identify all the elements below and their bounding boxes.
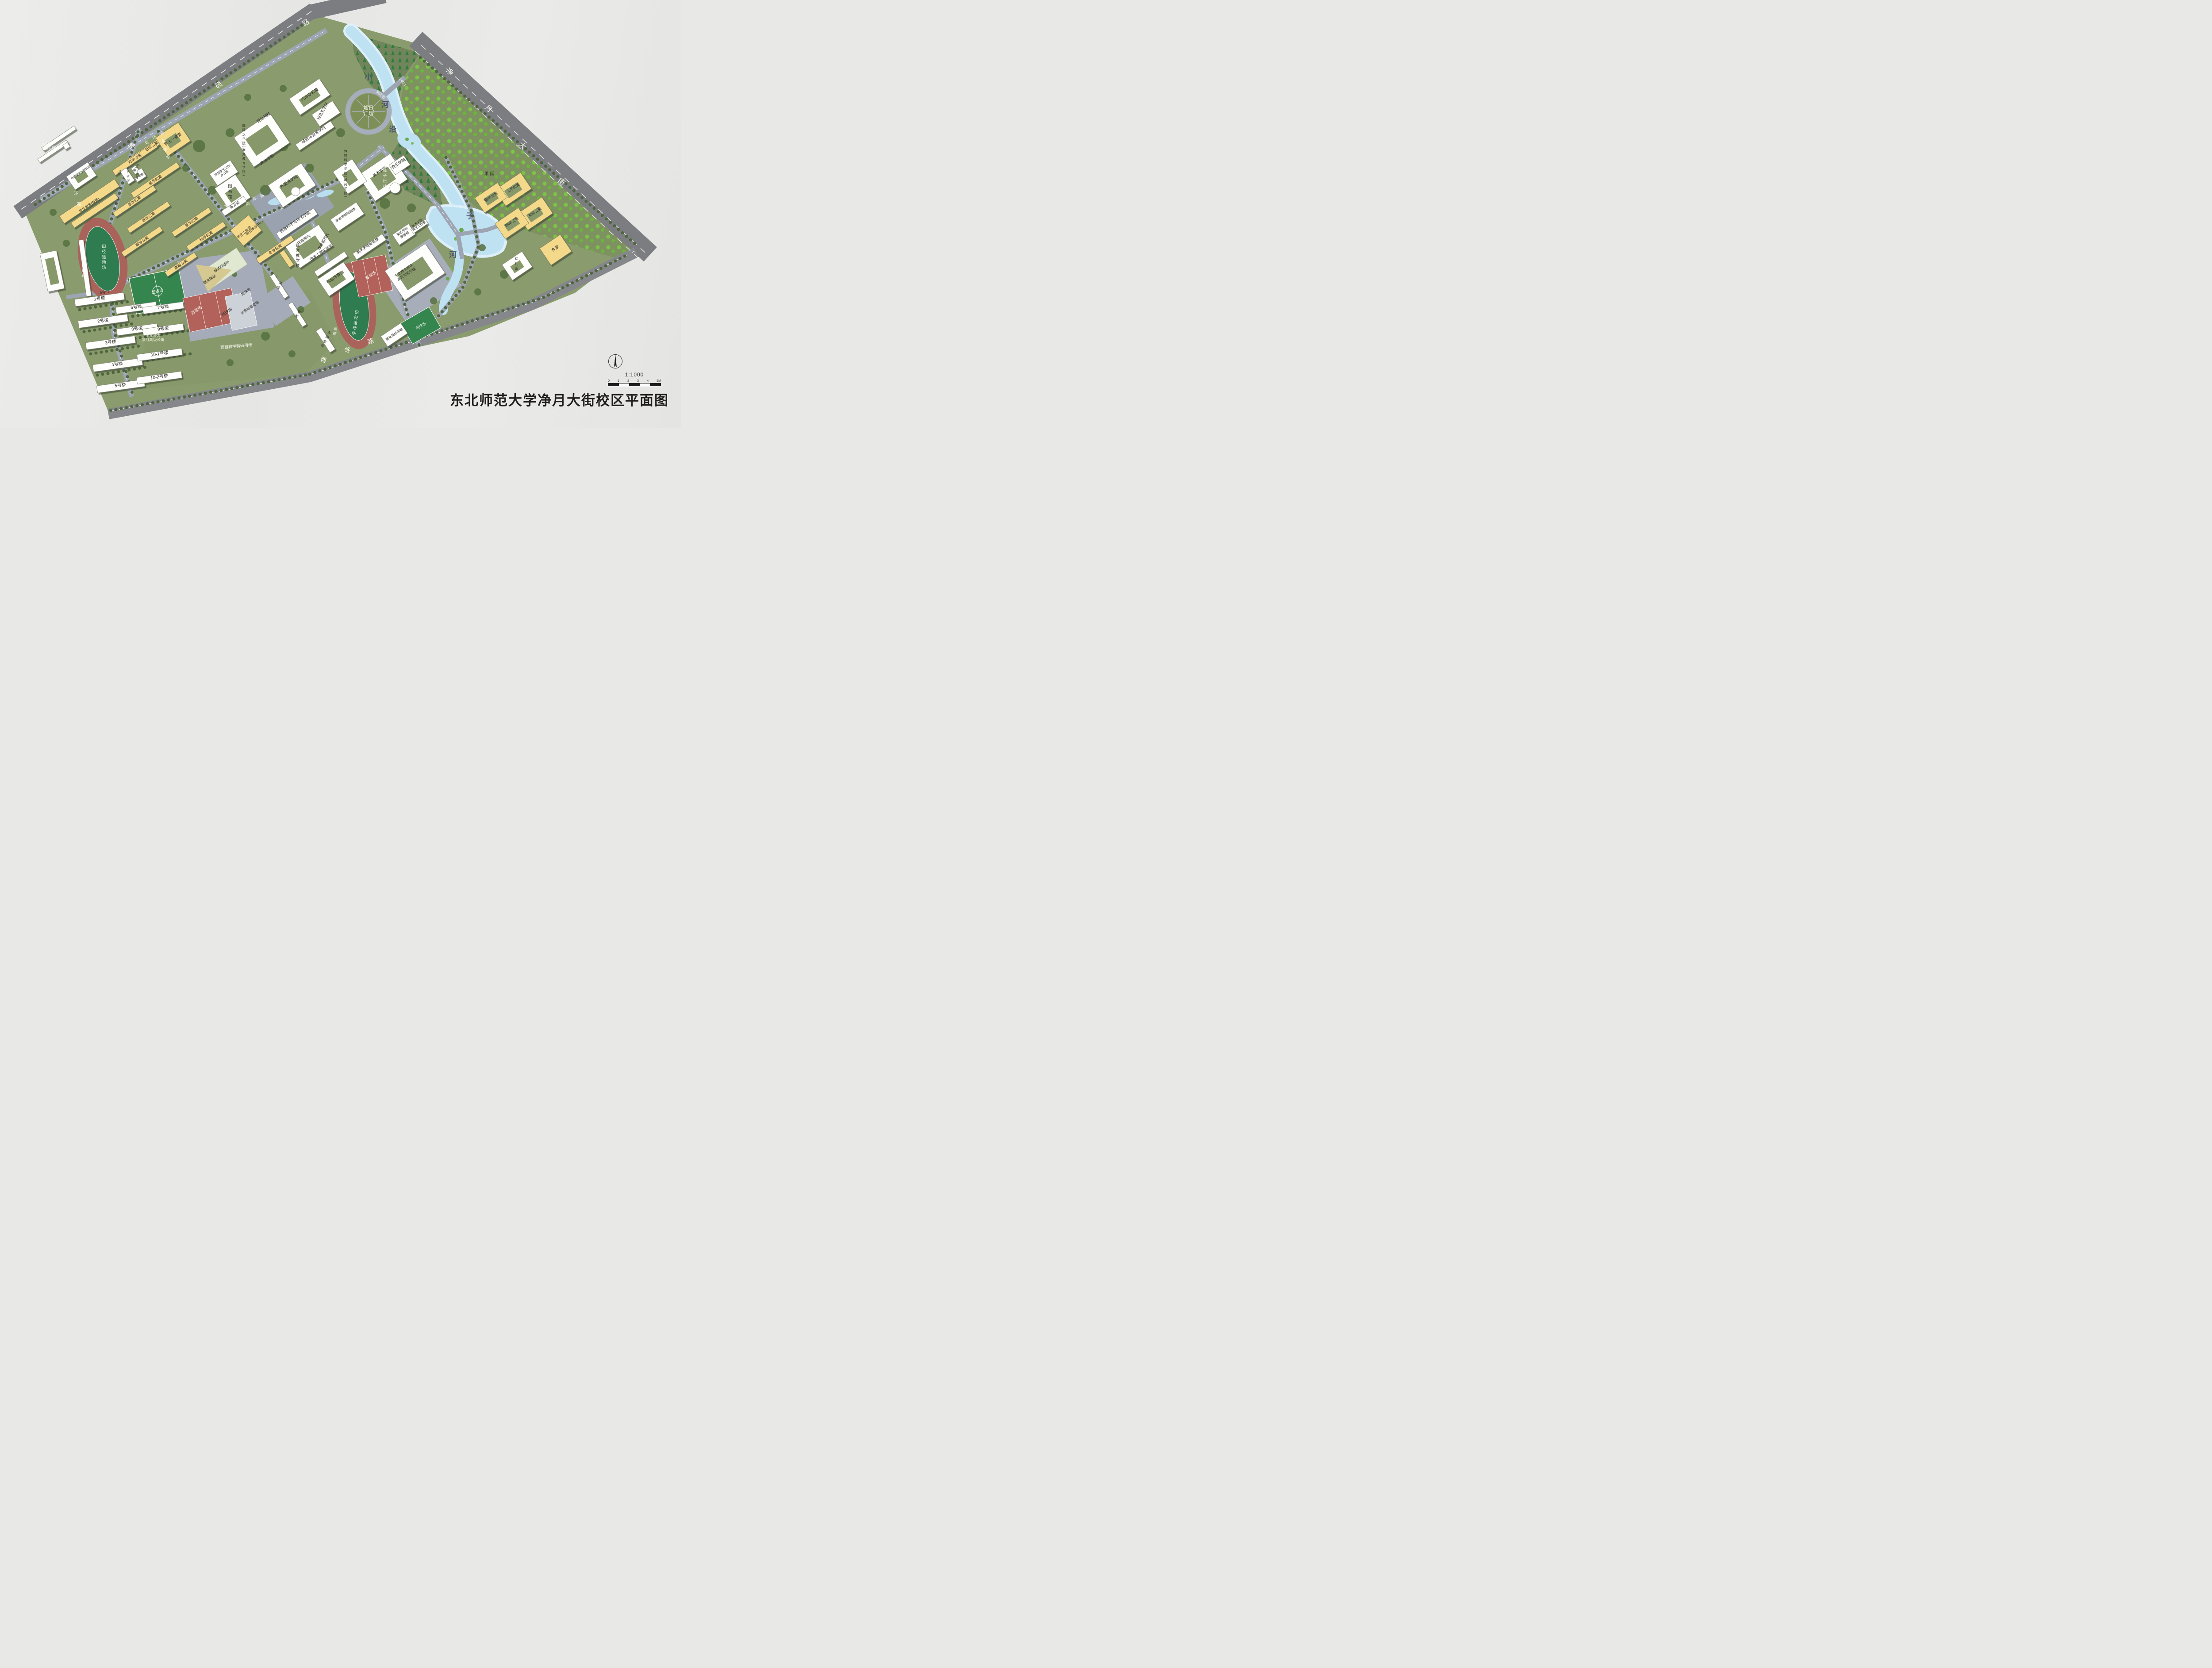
scale-ticks: 0 1 2 3 4 5M bbox=[608, 380, 661, 383]
map-label: 幼儿园 bbox=[514, 257, 518, 272]
scale-tick: 3 bbox=[637, 380, 639, 383]
map-label: 博 bbox=[319, 356, 327, 364]
map-label: 综合教学楼 bbox=[296, 243, 300, 269]
map-label: 果 园 bbox=[484, 172, 495, 177]
map-label: 诚 bbox=[162, 146, 168, 153]
map-label: 美术学院 bbox=[372, 165, 388, 178]
map-label: 街 bbox=[556, 177, 567, 188]
map-label: 夏华公寓 bbox=[184, 216, 199, 228]
map-label: 蓄水池 bbox=[133, 164, 141, 173]
map-label: 人华公寓 bbox=[506, 182, 521, 194]
map-label: 政法学院 bbox=[259, 153, 275, 166]
scale-ratio: 1:1000 bbox=[608, 372, 661, 378]
map-label: 雪华公寓 bbox=[127, 195, 142, 207]
map-label: 净 bbox=[444, 67, 455, 78]
map-label: 河 bbox=[449, 251, 457, 260]
map-label: 足球场 bbox=[151, 288, 164, 295]
map-label: 净月学生工作 办公区 bbox=[214, 164, 234, 180]
map-label: 足球场 bbox=[415, 321, 426, 331]
map-label: 篮球场 bbox=[365, 270, 377, 281]
map-label: 路 bbox=[226, 208, 232, 214]
map-label: 音乐学院 bbox=[391, 157, 407, 170]
map-label: 6号门 bbox=[100, 290, 109, 295]
map-label: 东师会馆 bbox=[319, 330, 332, 349]
map-label: 物业维修中心 bbox=[245, 219, 264, 236]
map-label: 东北师大附中 净月实验学校 bbox=[394, 263, 417, 282]
map-label: 冬华公寓 bbox=[268, 243, 283, 255]
map-label: 保卫处 bbox=[229, 200, 241, 210]
map-label: 预留教学科研用地 bbox=[220, 342, 253, 350]
map-label: 旭日 广场 bbox=[364, 105, 373, 117]
map-label: 外国语学院 bbox=[279, 174, 298, 189]
map-label: 田径运动场 bbox=[350, 310, 359, 337]
map-label: 留日预校 bbox=[256, 111, 272, 124]
map-label: 子 bbox=[466, 212, 474, 221]
map-label: 10-2号楼 bbox=[150, 373, 168, 381]
map-label: 环 bbox=[74, 192, 78, 196]
map-label: 西 bbox=[71, 181, 75, 186]
map-label: 硕 bbox=[214, 80, 224, 90]
map-label: 洗衣房 bbox=[126, 170, 129, 183]
map-label: 环境学院 bbox=[296, 234, 311, 245]
map-label: 信息科学与技术学院 bbox=[279, 210, 311, 234]
map-label: 9号楼 bbox=[157, 326, 169, 332]
map-label: 学 bbox=[344, 346, 352, 355]
map-label: 路 bbox=[301, 18, 311, 28]
map-label: 路 bbox=[159, 130, 165, 136]
scale-tick: 5M bbox=[657, 380, 661, 383]
scale-segments bbox=[608, 383, 661, 386]
map-label: 学生公寓(在建) bbox=[78, 197, 100, 214]
map-label: 环 bbox=[151, 134, 157, 141]
map-label: 美术学院绘画楼 bbox=[335, 207, 357, 223]
map-label: 博 bbox=[127, 142, 137, 152]
scale-tick: 0 bbox=[608, 380, 610, 383]
map-label: 月华公寓 bbox=[127, 153, 142, 165]
map-label: 健身路径 bbox=[203, 274, 217, 285]
map-label: 4号楼 bbox=[111, 361, 123, 368]
map-label: 樟子松林 bbox=[382, 168, 387, 189]
map-label: 5号楼 bbox=[115, 382, 127, 389]
map-label: 美术学院 陶艺工作室 bbox=[410, 218, 427, 232]
campus-map: 博硕路净月大街博学路北环路西环路南环路学诚路学诚路小河沿子河旭日 广场紫光桥1号… bbox=[0, 0, 681, 428]
map-label: 田径运动场 bbox=[101, 244, 106, 271]
map-labels: 博硕路净月大街博学路北环路西环路南环路学诚路学诚路小河沿子河旭日 广场紫光桥1号… bbox=[0, 0, 681, 428]
map-label: 春华公寓 bbox=[141, 211, 156, 223]
scale-tick: 4 bbox=[647, 380, 649, 383]
map-label: 健身器材场地 bbox=[385, 327, 403, 342]
map-label: 经济与管理学院 bbox=[301, 125, 326, 145]
map-label: 北 bbox=[144, 140, 150, 146]
map-label: 环 bbox=[252, 196, 257, 202]
map-label: 6号楼 bbox=[131, 304, 142, 311]
map-label: 食堂 bbox=[551, 244, 560, 253]
map-label: 紫光桥 bbox=[375, 90, 386, 100]
map-label: 学 bbox=[160, 138, 166, 145]
map-label: 月 bbox=[483, 104, 494, 115]
map-label: 路 bbox=[165, 154, 171, 160]
map-label: 沿 bbox=[389, 125, 397, 134]
map-label: 跑廊 bbox=[332, 326, 338, 337]
map-label: 学术期刊社 bbox=[317, 232, 330, 251]
map-label: 小 bbox=[365, 73, 373, 82]
map-label: 篮球场 bbox=[190, 305, 203, 316]
map-label: 板式网球场 bbox=[213, 260, 230, 273]
map-label: 图书馆 bbox=[227, 184, 232, 200]
map-label: 东北师大 净月高级公寓 bbox=[142, 333, 164, 342]
map-legend: 1:1000 0 1 2 3 4 5M bbox=[608, 354, 661, 387]
map-label: 天华公寓 bbox=[527, 206, 542, 218]
map-label: 行政办公楼 bbox=[300, 87, 319, 102]
map-label: 7号楼 bbox=[157, 304, 169, 311]
map-label: 排球场 bbox=[240, 287, 251, 296]
map-title: 东北师范大学净月大街校区平面图 bbox=[450, 389, 669, 409]
map-label: 路 bbox=[260, 193, 265, 199]
map-label: 3号楼 bbox=[105, 339, 117, 346]
map-label: 秋华公寓 bbox=[199, 230, 214, 242]
map-label: 10-1号楼 bbox=[150, 350, 169, 358]
map-label: 车库 bbox=[293, 309, 302, 320]
map-label: 地华公寓 bbox=[504, 216, 519, 228]
map-label: 1号门 bbox=[398, 77, 406, 87]
map-label: 日华公寓 bbox=[144, 140, 159, 152]
map-label: 南 bbox=[245, 201, 250, 207]
map-label: 外国留学生预科部 bbox=[70, 165, 91, 181]
map-label: 2号楼 bbox=[97, 318, 109, 324]
map-label: 晨华公寓 bbox=[134, 235, 150, 247]
scale-tick: 1 bbox=[618, 380, 619, 383]
map-label: 辐射技术 研究所 bbox=[42, 140, 57, 151]
map-label: 学 bbox=[221, 196, 227, 202]
map-label: 路 bbox=[367, 337, 375, 346]
map-label: 变电室 bbox=[135, 173, 145, 180]
map-label: 美术学院服装楼 bbox=[355, 237, 380, 255]
scale-tick: 2 bbox=[627, 380, 629, 383]
map-label: 学生一食堂 bbox=[163, 132, 182, 147]
map-label: 学生二食堂 bbox=[236, 225, 253, 240]
map-label: 美术学院 雕塑楼 bbox=[396, 226, 411, 240]
scale-bar: 0 1 2 3 4 5M bbox=[608, 380, 661, 387]
map-label: 综合体育馆 bbox=[326, 270, 345, 285]
map-label: 8号楼 bbox=[131, 326, 143, 332]
map-label: 诚 bbox=[223, 202, 229, 208]
map-label: 物华公寓 bbox=[484, 191, 499, 203]
map-label: 车库 bbox=[275, 280, 284, 291]
map-label: 路 bbox=[77, 202, 81, 207]
map-label: 高级公寓 bbox=[173, 258, 188, 270]
map-label: 纽瓦克学院 bbox=[316, 102, 329, 120]
map-label: 河 bbox=[381, 100, 389, 109]
map-label: 国际汉学院(海外教育学院) bbox=[242, 124, 245, 177]
map-label: 传媒科学学院(新闻学院) bbox=[343, 150, 347, 199]
map-label: 国家工程实验室 bbox=[309, 243, 333, 262]
map-label: 1号楼 bbox=[94, 295, 106, 302]
north-compass-icon bbox=[627, 354, 642, 369]
map-label: 体育长廊 bbox=[81, 259, 85, 278]
map-label: 仿真冰健身馆 bbox=[240, 300, 260, 316]
map-label: 星华公寓 bbox=[148, 174, 163, 186]
map-label: 浴池 bbox=[118, 170, 123, 176]
map-label: 网球场 bbox=[221, 307, 233, 318]
map-label: 大 bbox=[517, 141, 528, 152]
